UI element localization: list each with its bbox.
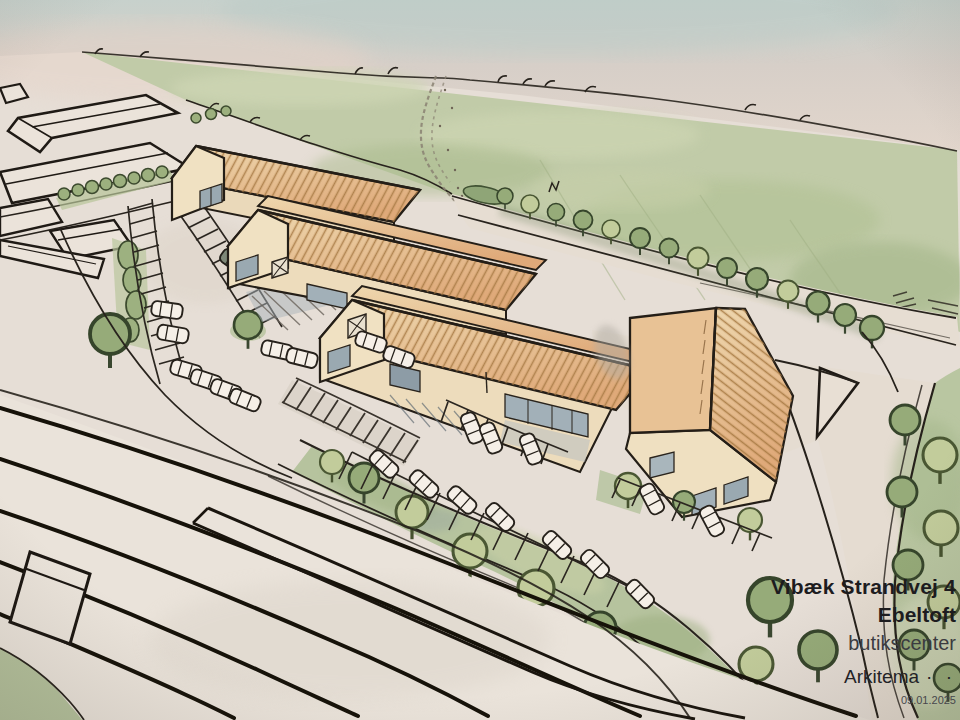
project-type-label: butikscenter [848,632,956,655]
photo-vignette [0,0,960,720]
address-line-1: Vibæk Strandvej 4 [771,575,956,599]
architect-firm-label: Arkitema· · [844,666,956,688]
address-line-2: Ebeltoft [878,603,956,627]
date-label: 09.01.2025 [901,694,956,706]
firm-logo-dots: · · [926,666,956,687]
architectural-sketch-photo: Vibæk Strandvej 4 Ebeltoft butikscenter … [0,0,960,720]
site-sketch-canvas [0,0,960,720]
